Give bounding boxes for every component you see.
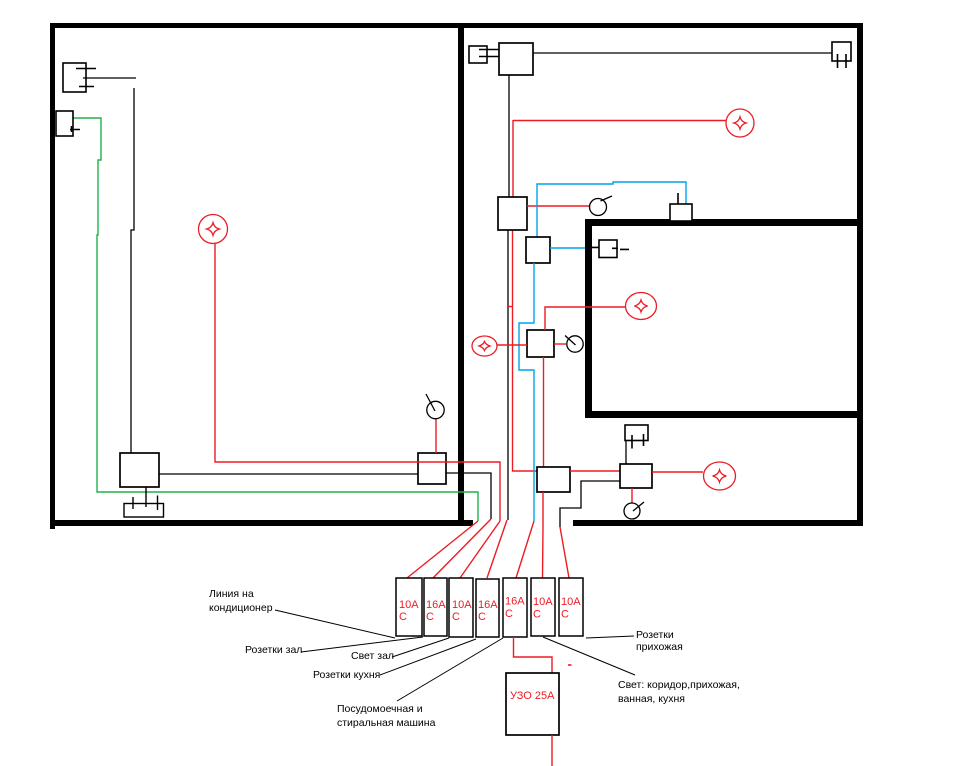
svg-text:16А: 16А (426, 599, 446, 611)
svg-text:10А: 10А (533, 596, 553, 608)
svg-text:10А: 10А (399, 599, 419, 611)
svg-text:С: С (399, 611, 407, 623)
svg-text:С: С (505, 608, 513, 620)
svg-text:прихожая: прихожая (636, 641, 683, 653)
svg-text:ванная, кухня: ванная, кухня (618, 693, 685, 705)
svg-text:Розетки кухня: Розетки кухня (313, 669, 380, 681)
svg-text:Розетки: Розетки (636, 629, 674, 641)
svg-text:16А: 16А (478, 599, 498, 611)
svg-text:С: С (561, 609, 569, 621)
svg-text:С: С (478, 611, 486, 623)
svg-text:С: С (452, 611, 460, 623)
svg-text:16А: 16А (505, 596, 525, 608)
svg-text:кондиционер: кондиционер (209, 602, 273, 614)
svg-text:10А: 10А (452, 599, 472, 611)
svg-text:Свет: коридор,прихожая,: Свет: коридор,прихожая, (618, 679, 740, 691)
svg-text:УЗО 25А: УЗО 25А (510, 690, 555, 702)
svg-text:С: С (533, 609, 541, 621)
svg-text:Розетки зал: Розетки зал (245, 644, 302, 656)
svg-text:стиральная машина: стиральная машина (337, 717, 436, 729)
svg-text:С: С (426, 611, 434, 623)
svg-text:10А: 10А (561, 596, 581, 608)
svg-text:Свет зал: Свет зал (351, 650, 394, 662)
svg-text:Линия на: Линия на (209, 588, 254, 600)
svg-text:Посудомоечная и: Посудомоечная и (337, 703, 423, 715)
